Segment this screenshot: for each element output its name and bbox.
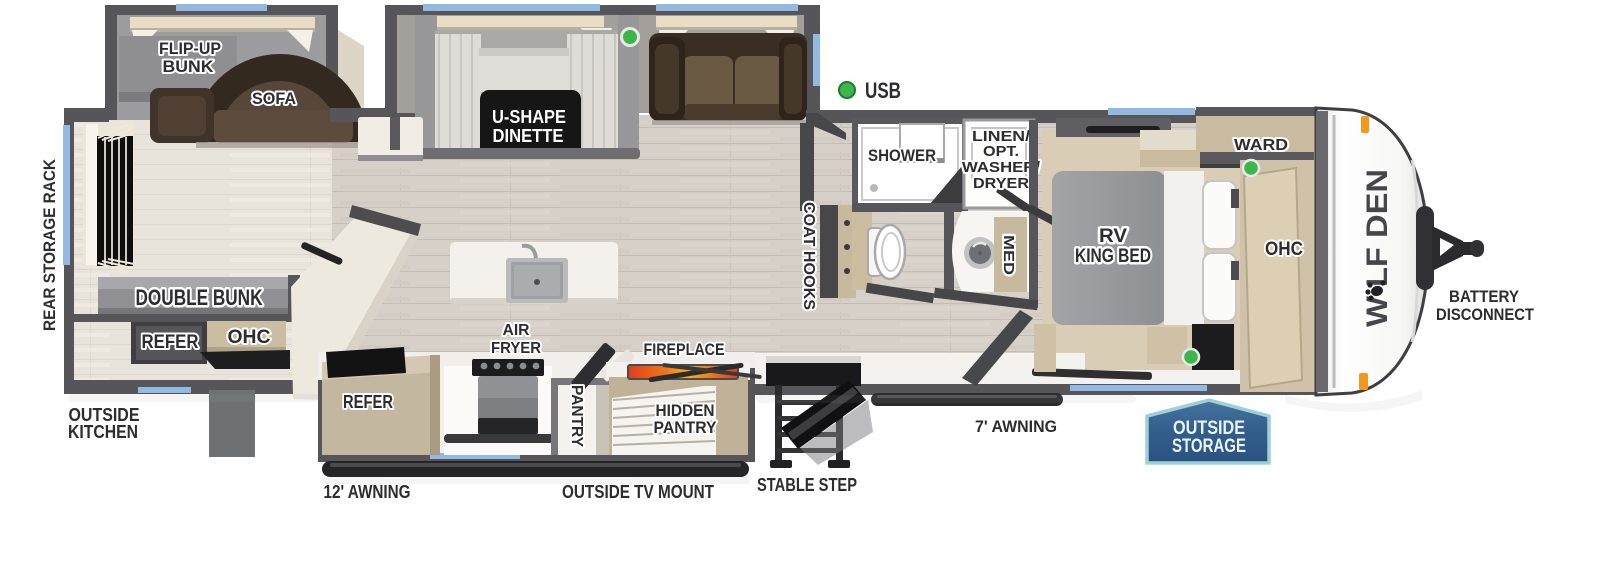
svg-text:BATTERY: BATTERY xyxy=(1449,287,1520,306)
svg-text:REAR STORAGE RACK: REAR STORAGE RACK xyxy=(40,158,59,331)
svg-text:FRYER: FRYER xyxy=(491,340,541,357)
svg-text:DISCONNECT: DISCONNECT xyxy=(1436,305,1535,324)
svg-text:AIR: AIR xyxy=(503,322,530,339)
svg-text:DINETTE: DINETTE xyxy=(493,126,564,146)
svg-text:WARD: WARD xyxy=(1234,137,1288,154)
svg-text:SOFA: SOFA xyxy=(252,89,296,108)
svg-text:REFER: REFER xyxy=(142,332,199,353)
svg-text:OUTSIDE TV MOUNT: OUTSIDE TV MOUNT xyxy=(562,482,714,502)
svg-text:RV: RV xyxy=(1099,226,1127,247)
svg-text:KING BED: KING BED xyxy=(1075,246,1151,267)
svg-text:12' AWNING: 12' AWNING xyxy=(324,482,411,502)
svg-text:U-SHAPE: U-SHAPE xyxy=(492,107,566,127)
svg-text:7' AWNING: 7' AWNING xyxy=(975,417,1057,436)
svg-text:REFER: REFER xyxy=(343,392,393,412)
svg-text:SHOWER: SHOWER xyxy=(868,146,936,165)
svg-text:OHC: OHC xyxy=(1265,239,1303,260)
svg-text:W LF DEN: W LF DEN xyxy=(1361,169,1394,327)
svg-text:OPT.: OPT. xyxy=(983,143,1019,160)
svg-text:USB: USB xyxy=(865,78,901,103)
svg-text:DOUBLE BUNK: DOUBLE BUNK xyxy=(136,285,263,310)
svg-text:BUNK: BUNK xyxy=(163,57,215,76)
svg-text:PANTRY: PANTRY xyxy=(654,418,718,437)
svg-text:STABLE STEP: STABLE STEP xyxy=(757,475,857,495)
svg-text:FIREPLACE: FIREPLACE xyxy=(644,340,725,359)
svg-text:FLIP-UP: FLIP-UP xyxy=(159,39,221,58)
svg-text:STORAGE: STORAGE xyxy=(1172,436,1246,457)
svg-text:PANTRY: PANTRY xyxy=(568,385,585,447)
svg-text:KITCHEN: KITCHEN xyxy=(68,422,138,442)
svg-text:MED: MED xyxy=(1000,235,1017,275)
svg-text:OHC: OHC xyxy=(228,327,271,348)
svg-text:DRYER: DRYER xyxy=(973,175,1029,192)
svg-text:COAT HOOKS: COAT HOOKS xyxy=(800,202,817,310)
